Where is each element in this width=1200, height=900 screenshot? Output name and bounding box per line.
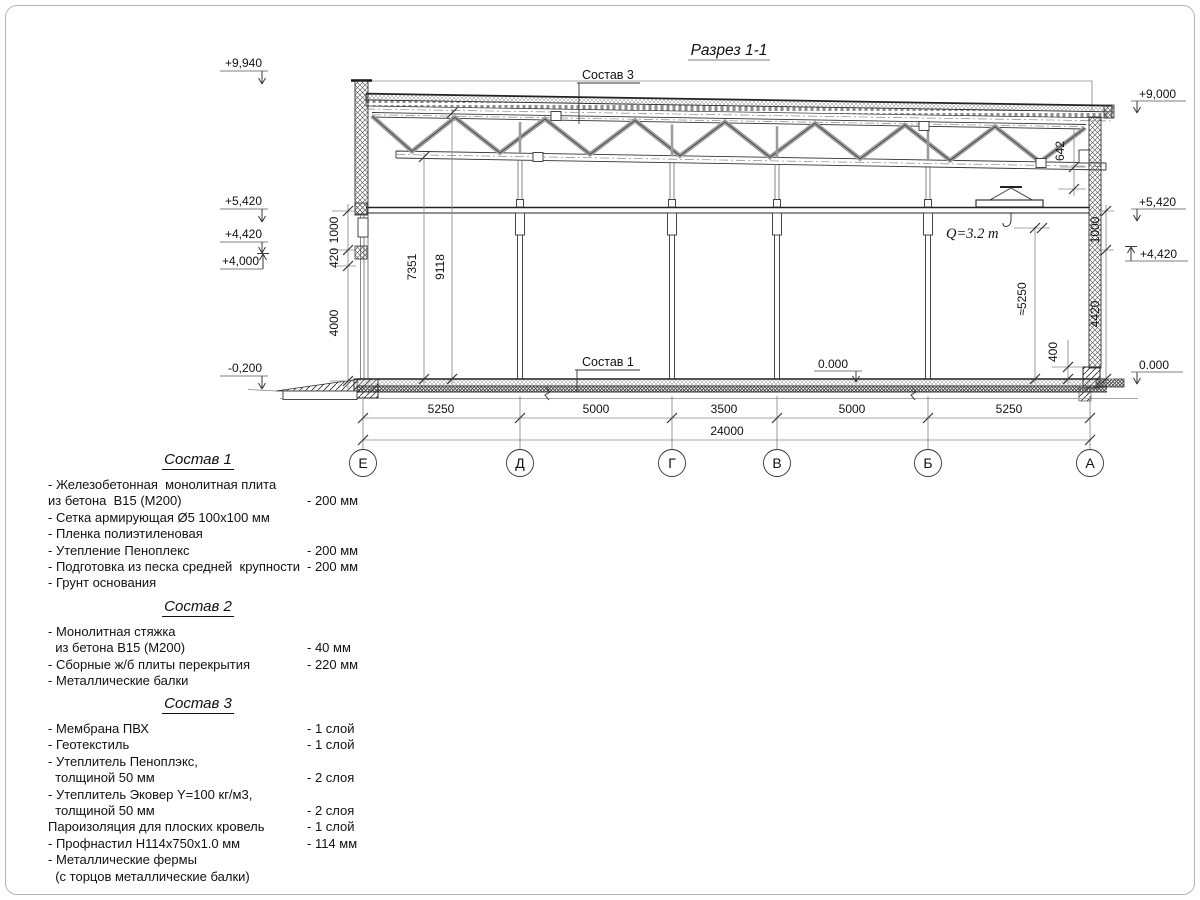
dim-400: 400 bbox=[1046, 342, 1060, 362]
crane-rail-bracket bbox=[1079, 150, 1089, 163]
dim-4000-left: 4000 bbox=[327, 309, 341, 336]
left-wall-upper bbox=[355, 81, 368, 215]
list-item: - Железобетонная монолитная плита bbox=[48, 477, 360, 493]
list-item: - Утеплитель Пеноплэкс, bbox=[48, 754, 360, 770]
splice-plate bbox=[1036, 159, 1046, 168]
splice-plate bbox=[919, 122, 929, 131]
columns bbox=[516, 160, 933, 379]
composition-1-list: Состав 1 - Железобетонная монолитная пли… bbox=[48, 451, 360, 592]
elev-right-floor: 0.000 bbox=[1139, 358, 1169, 372]
span-e-d: 5250 bbox=[428, 402, 455, 416]
axis-G: Г bbox=[668, 455, 676, 471]
label-sostav-3: Состав 3 bbox=[582, 68, 634, 82]
elev-left-parapet: +9,940 bbox=[225, 56, 262, 70]
list-item: толщиной 50 мм- 2 слоя bbox=[48, 770, 360, 786]
span-v-b: 5000 bbox=[839, 402, 866, 416]
composition-2-list: Состав 2 - Монолитная стяжка из бетона В… bbox=[48, 598, 360, 690]
dim-420-left: 420 bbox=[327, 248, 341, 268]
list-item: - Грунт основания bbox=[48, 575, 360, 591]
elev-right-col: +4,420 bbox=[1140, 247, 1177, 261]
dim-642: 642 bbox=[1053, 141, 1067, 161]
axis-B: Б bbox=[923, 455, 932, 471]
apron-slab bbox=[283, 391, 357, 400]
elev-left-400: +4,000 bbox=[222, 254, 259, 268]
list-item: - Сборные ж/б плиты перекрытия- 220 мм bbox=[48, 657, 360, 673]
crane-capacity-label: Q=3.2 т bbox=[946, 226, 998, 242]
list-item: - Металлические балки bbox=[48, 673, 360, 689]
elev-left-ground: -0,200 bbox=[228, 361, 262, 375]
list-item: (с торцов металлические балки) bbox=[48, 869, 360, 885]
span-dim-labels: 5250 5000 3500 5000 5250 24000 bbox=[428, 402, 1023, 438]
label-sostav-1: Состав 1 bbox=[582, 355, 634, 369]
list-item: - Металлические фермы bbox=[48, 852, 360, 868]
splice-plate bbox=[551, 112, 561, 121]
span-g-v: 3500 bbox=[711, 402, 738, 416]
crane-beam-level bbox=[366, 208, 1090, 214]
list-item: - Утепление Пеноплекс- 200 мм bbox=[48, 543, 360, 559]
axis-D: Д bbox=[515, 455, 525, 471]
list-item: - Профнастил Н114х750х1.0 мм- 114 мм bbox=[48, 836, 360, 852]
elev-floor-interior: 0.000 bbox=[818, 357, 848, 371]
elev-left-beam: +5,420 bbox=[225, 194, 262, 208]
elev-left-col: +4,420 bbox=[225, 227, 262, 241]
elev-right-beam: +5,420 bbox=[1139, 195, 1176, 209]
list-item: из бетона В15 (М200)- 40 мм bbox=[48, 640, 360, 656]
list-item: - Монолитная стяжка bbox=[48, 624, 360, 640]
list-item: - Мембрана ПВХ- 1 слой bbox=[48, 721, 360, 737]
composition-3-list: Состав 3 - Мембрана ПВХ- 1 слой - Геотек… bbox=[48, 695, 360, 885]
dim-1000-right: 1000 bbox=[1088, 216, 1102, 243]
section-drawing-1-1: Разрез 1-1 bbox=[0, 0, 1200, 490]
crane-hook bbox=[1003, 221, 1011, 227]
list-item: - Сетка армирующая Ø5 100х100 мм bbox=[48, 510, 360, 526]
list-item: - Подготовка из песка средней крупности-… bbox=[48, 559, 360, 575]
axis-bubbles: Е Д Г В Б А bbox=[350, 450, 1104, 477]
roof-edge-block bbox=[1104, 105, 1114, 118]
drawing-title: Разрез 1-1 bbox=[688, 42, 770, 60]
composition-1-title: Состав 1 bbox=[48, 451, 348, 468]
dim-9118: 9118 bbox=[433, 254, 447, 280]
dim-5250-hook: ≈5250 bbox=[1015, 282, 1029, 316]
composition-2-title: Состав 2 bbox=[48, 598, 348, 615]
composition-3-title: Состав 3 bbox=[48, 695, 348, 712]
axis-A: А bbox=[1085, 455, 1095, 471]
list-item: толщиной 50 мм- 2 слоя bbox=[48, 803, 360, 819]
list-item: - Геотекстиль- 1 слой bbox=[48, 737, 360, 753]
total-span: 24000 bbox=[710, 424, 744, 438]
roof-truss bbox=[372, 112, 1106, 171]
list-item: Пароизоляция для плоских кровель- 1 слой bbox=[48, 819, 360, 835]
dim-7351: 7351 bbox=[405, 253, 419, 280]
span-b-a: 5250 bbox=[996, 402, 1023, 416]
span-d-g: 5000 bbox=[583, 402, 610, 416]
left-wall-lower bbox=[361, 215, 369, 379]
elev-right-roof: +9,000 bbox=[1139, 87, 1176, 101]
splice-plate bbox=[533, 153, 543, 162]
drawing-sheet: Разрез 1-1 bbox=[0, 0, 1200, 900]
list-item: - Утеплитель Эковер Y=100 кг/м3, bbox=[48, 787, 360, 803]
floor-slab bbox=[248, 379, 1138, 400]
list-item: из бетона В15 (М200)- 200 мм bbox=[48, 493, 360, 509]
axis-V: В bbox=[772, 455, 781, 471]
page-title: Разрез 1-1 bbox=[691, 42, 768, 59]
dim-4420-right: 4420 bbox=[1088, 300, 1102, 327]
suspended-crane: Q=3.2 т bbox=[946, 187, 1043, 242]
list-item: - Пленка полиэтиленовая bbox=[48, 526, 360, 542]
dim-1000-left: 1000 bbox=[327, 216, 341, 243]
vertical-dim-labels: 1000 420 4000 7351 9118 642 ≈5250 400 10… bbox=[327, 141, 1102, 362]
